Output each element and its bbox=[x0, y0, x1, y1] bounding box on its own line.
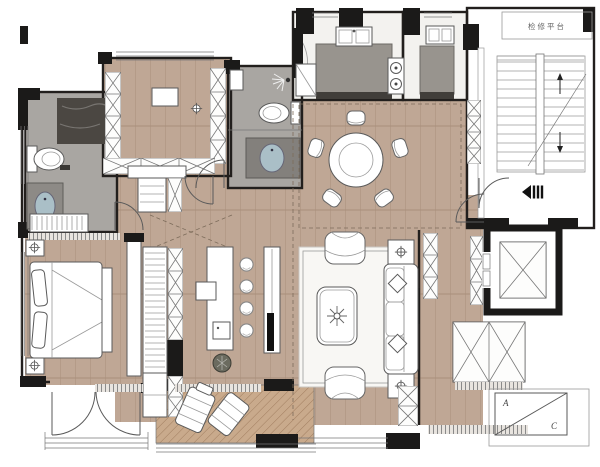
elevator-door-gap bbox=[482, 252, 491, 288]
cabinet-x-cell bbox=[168, 271, 183, 294]
wardrobe-x-cell bbox=[210, 68, 226, 92]
edge-hatch bbox=[428, 425, 528, 434]
cabinet-x-cell bbox=[168, 294, 183, 317]
stove-panel bbox=[388, 58, 404, 94]
floor-plan-image: 检修平台 bbox=[0, 0, 600, 467]
toilet-bowl bbox=[34, 148, 64, 170]
bedroom-hall-wall bbox=[127, 240, 141, 376]
bar-stool bbox=[240, 302, 253, 315]
shaft-x-cell bbox=[489, 322, 525, 382]
bath-fixture bbox=[230, 70, 243, 90]
service-shaft bbox=[453, 322, 525, 390]
toilet bbox=[27, 146, 64, 172]
entry-arrow-triangle bbox=[522, 185, 531, 199]
utility-sink bbox=[426, 26, 454, 44]
island-faucet bbox=[217, 327, 219, 329]
stove bbox=[388, 58, 404, 94]
kitchen-sink bbox=[336, 27, 372, 46]
post bbox=[256, 434, 298, 448]
post bbox=[18, 88, 28, 130]
toilet bbox=[259, 102, 300, 124]
bed-bench bbox=[102, 268, 112, 352]
bath-grille bbox=[30, 214, 88, 232]
floor-plan-drawing: 检修平台 bbox=[0, 0, 600, 467]
burner-center bbox=[395, 83, 398, 86]
post bbox=[20, 26, 28, 44]
basin bbox=[260, 144, 284, 172]
cabinet-x-cell bbox=[398, 386, 418, 406]
threshold-hatch bbox=[95, 384, 143, 392]
wardrobe-x-cell bbox=[105, 116, 121, 138]
kitchen-backsplash bbox=[316, 92, 392, 99]
dining-chair bbox=[347, 111, 365, 125]
wardrobe-x-cell bbox=[105, 138, 121, 160]
floor-plant bbox=[213, 354, 231, 372]
sofa bbox=[384, 264, 418, 374]
bar-stool bbox=[240, 258, 253, 271]
cabinet-x-cell bbox=[470, 282, 483, 305]
maintenance-platform-label: 检修平台 bbox=[528, 21, 566, 31]
tv-screen bbox=[267, 313, 274, 351]
compass-center bbox=[334, 313, 340, 319]
entry-direction-icon bbox=[522, 185, 542, 199]
coffee-table bbox=[317, 287, 357, 345]
wardrobe-x-cell bbox=[210, 92, 226, 116]
ladder-shelf bbox=[143, 247, 167, 373]
bed-pillow bbox=[31, 312, 47, 349]
post bbox=[124, 233, 144, 242]
bar-stool bbox=[240, 324, 253, 337]
hall-shelf bbox=[138, 178, 166, 212]
cabinet-x-cell bbox=[168, 317, 183, 340]
post bbox=[386, 433, 420, 449]
cabinet-x-cell bbox=[423, 255, 438, 277]
faucet bbox=[44, 198, 47, 201]
armchair bbox=[325, 367, 365, 399]
cabinet-x-cell bbox=[467, 100, 481, 116]
bed bbox=[30, 262, 112, 358]
burner-center bbox=[395, 67, 398, 70]
floor-drain bbox=[60, 165, 70, 170]
wardrobe-x-cell bbox=[210, 116, 226, 140]
entry-arrow-bars bbox=[534, 186, 542, 199]
cabinet-x-cell bbox=[470, 236, 483, 259]
stairwell: 检修平台 bbox=[467, 12, 592, 218]
cabinet-x-cell bbox=[423, 233, 438, 255]
island-bench bbox=[196, 282, 216, 300]
cabinet-x-cell bbox=[168, 248, 183, 271]
post bbox=[339, 8, 363, 28]
toilet-bowl bbox=[259, 103, 289, 123]
ac-label-a: A bbox=[502, 398, 509, 408]
ac-label-c: C bbox=[551, 421, 558, 431]
cabinet-x-cell bbox=[467, 116, 481, 132]
shaft-x-cell bbox=[453, 322, 489, 382]
wardrobe-x-cell bbox=[105, 72, 121, 94]
dresser bbox=[152, 88, 178, 106]
cabinet-x-cell bbox=[467, 148, 481, 164]
cabinet-x-cell bbox=[168, 178, 182, 212]
post bbox=[20, 376, 46, 387]
faucet bbox=[353, 30, 356, 33]
post bbox=[264, 379, 294, 391]
post bbox=[98, 52, 112, 64]
post bbox=[463, 24, 479, 50]
cabinet-x-cell bbox=[467, 132, 481, 148]
cabinet-x-cell bbox=[423, 277, 438, 299]
cabinet-x-cell bbox=[398, 406, 418, 426]
dining-table bbox=[329, 133, 383, 187]
utility-counter bbox=[420, 46, 454, 94]
vanity-sink bbox=[246, 138, 300, 178]
compass-decor-icon bbox=[327, 306, 347, 326]
post bbox=[403, 8, 420, 35]
ac-platform: A C bbox=[489, 389, 589, 446]
cabinet-x-cell bbox=[470, 259, 483, 282]
kitchen-counter bbox=[316, 44, 392, 94]
wardrobe-strip bbox=[28, 233, 120, 240]
bar-stool bbox=[240, 280, 253, 293]
faucet bbox=[271, 149, 274, 152]
hall-counter bbox=[128, 166, 186, 178]
shower-head bbox=[286, 78, 290, 82]
wardrobe-x-cell bbox=[105, 94, 121, 116]
armchair bbox=[325, 232, 365, 264]
elevator-cab-x bbox=[500, 242, 546, 298]
tv-console bbox=[264, 247, 280, 353]
utility-backsplash bbox=[420, 92, 454, 99]
stair-handrail bbox=[536, 54, 544, 174]
